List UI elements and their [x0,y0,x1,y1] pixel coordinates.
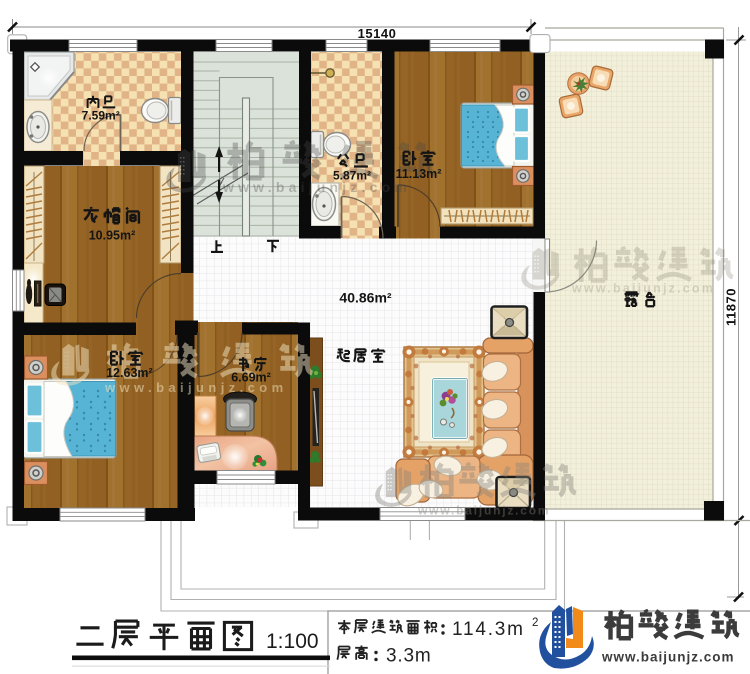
svg-text:www.baijunjz.com: www.baijunjz.com [601,650,735,665]
svg-text:10.95m²: 10.95m² [89,229,136,243]
svg-text:11.13m²: 11.13m² [396,167,442,181]
svg-text:www.baijunjz.com: www.baijunjz.com [417,504,550,518]
svg-text:6.69m²: 6.69m² [231,371,271,385]
svg-text:2: 2 [532,617,538,629]
svg-text:12.63m²: 12.63m² [106,366,153,380]
svg-text:5.87m²: 5.87m² [333,169,371,183]
svg-text:15140: 15140 [358,26,397,41]
svg-text:3.3m: 3.3m [386,646,431,667]
svg-text:www.baijunjz.com: www.baijunjz.com [222,179,411,195]
svg-text:1:100: 1:100 [266,630,319,653]
svg-text:7.59m²: 7.59m² [82,109,120,123]
svg-text:114.3m: 114.3m [452,619,525,640]
svg-text:11870: 11870 [724,288,739,326]
svg-text:40.86m²: 40.86m² [339,290,391,306]
svg-text:www.baijunjz.com: www.baijunjz.com [571,282,715,296]
